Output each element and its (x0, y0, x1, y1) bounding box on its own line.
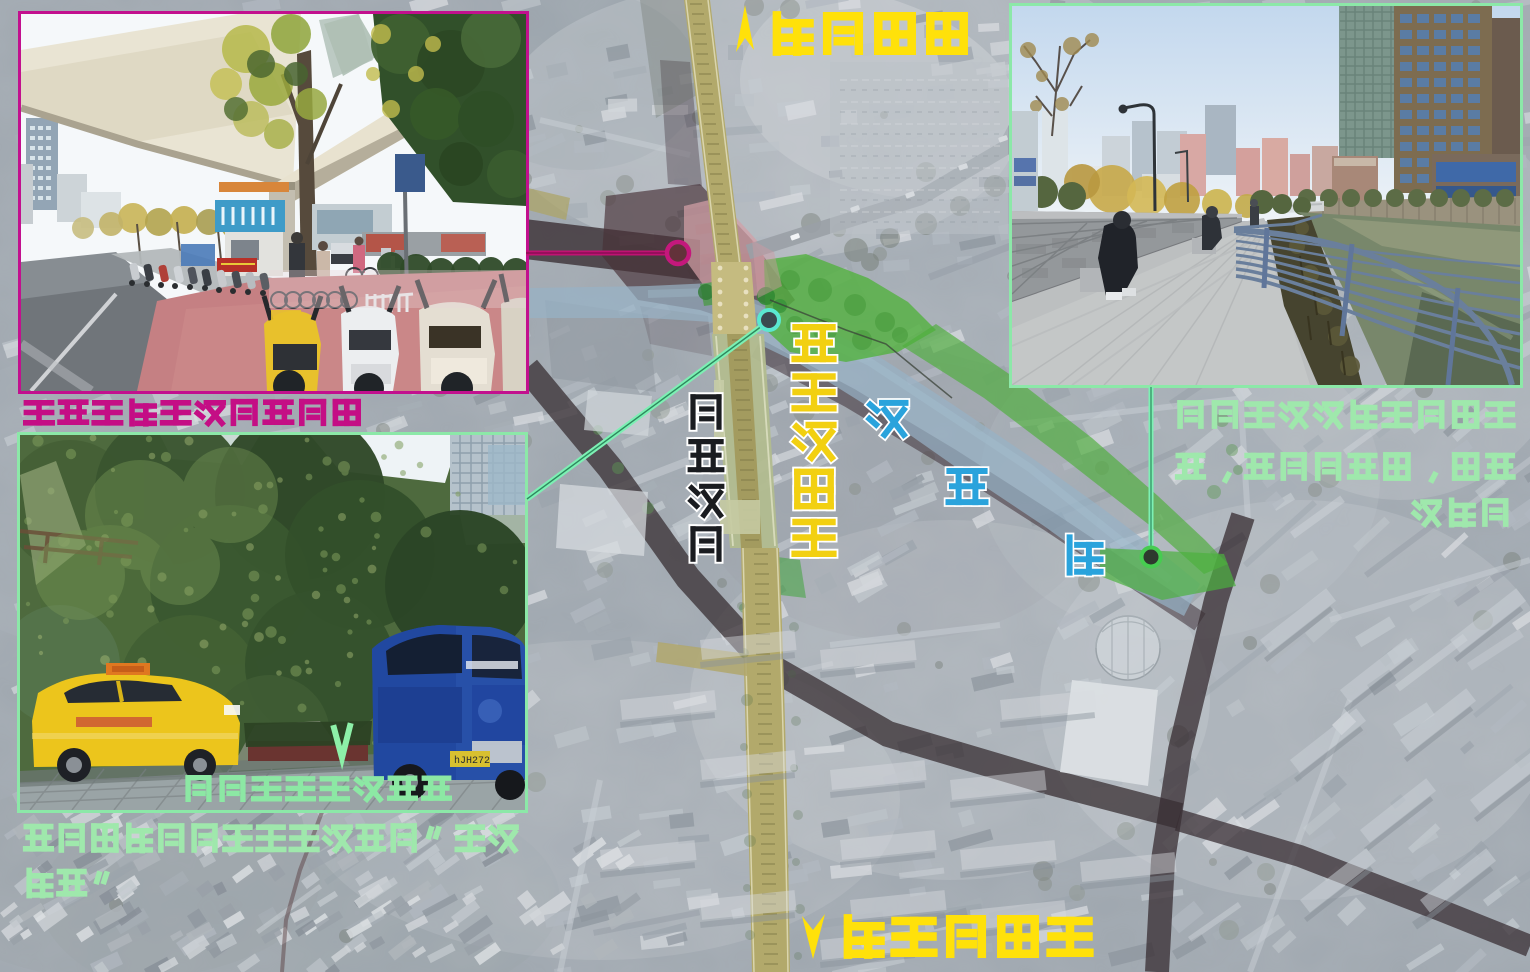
svg-text:hJH272: hJH272 (454, 755, 490, 767)
